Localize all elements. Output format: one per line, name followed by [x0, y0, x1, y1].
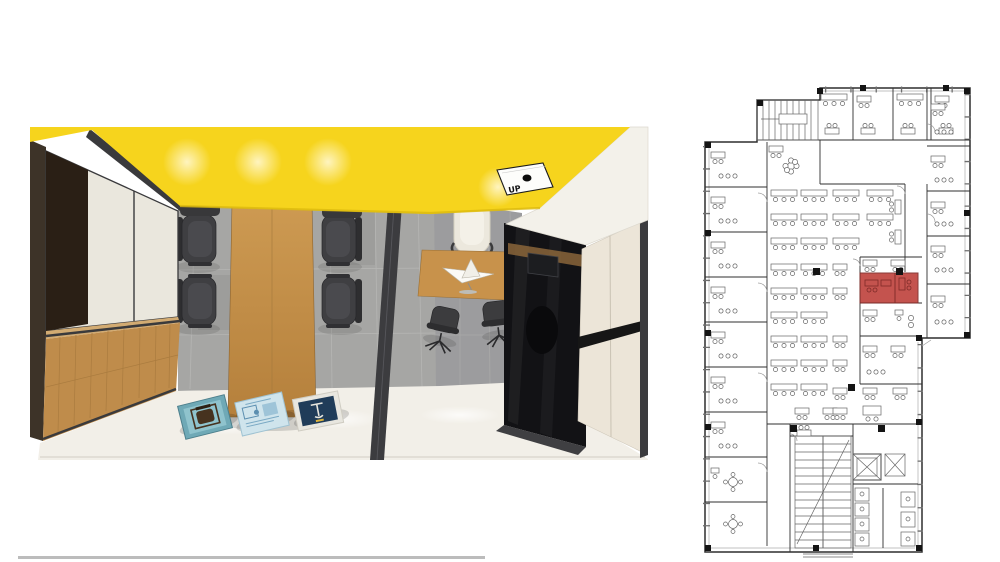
stair-bottom	[795, 436, 851, 548]
left-outer-wall	[30, 140, 46, 441]
floor-plan	[703, 84, 975, 560]
right-dark-post	[640, 217, 648, 458]
left-wall-doorway	[46, 151, 88, 331]
toilets	[855, 488, 915, 546]
entrance-steps	[803, 554, 853, 557]
highlighted-room	[860, 273, 918, 303]
stair-top	[757, 100, 818, 140]
black-glass-wall	[496, 223, 586, 455]
meeting-chair	[318, 212, 362, 273]
plan-interior-walls	[705, 88, 970, 552]
plan-workstations	[711, 94, 953, 534]
elevator	[853, 454, 905, 480]
meeting-chair	[176, 212, 220, 273]
plan-outer-wall	[705, 88, 970, 552]
bottom-divider-line	[18, 556, 485, 559]
inner-chair-silhouette	[526, 306, 558, 354]
render-3d-view: UP	[30, 125, 650, 460]
slide-canvas: UP	[0, 0, 1000, 562]
meeting-chair	[318, 274, 362, 335]
sliding-panels	[578, 217, 648, 458]
office-desk	[418, 250, 512, 300]
floor-light-spot	[420, 406, 500, 424]
plan-windows	[707, 90, 968, 549]
plan-columns	[705, 85, 970, 551]
panel-dot	[523, 175, 532, 182]
ceiling-light-glow	[234, 138, 282, 186]
monitor	[528, 253, 558, 277]
ceiling-light-glow	[304, 138, 352, 186]
meeting-chair	[176, 274, 220, 335]
ceiling-light-glow	[163, 138, 211, 186]
